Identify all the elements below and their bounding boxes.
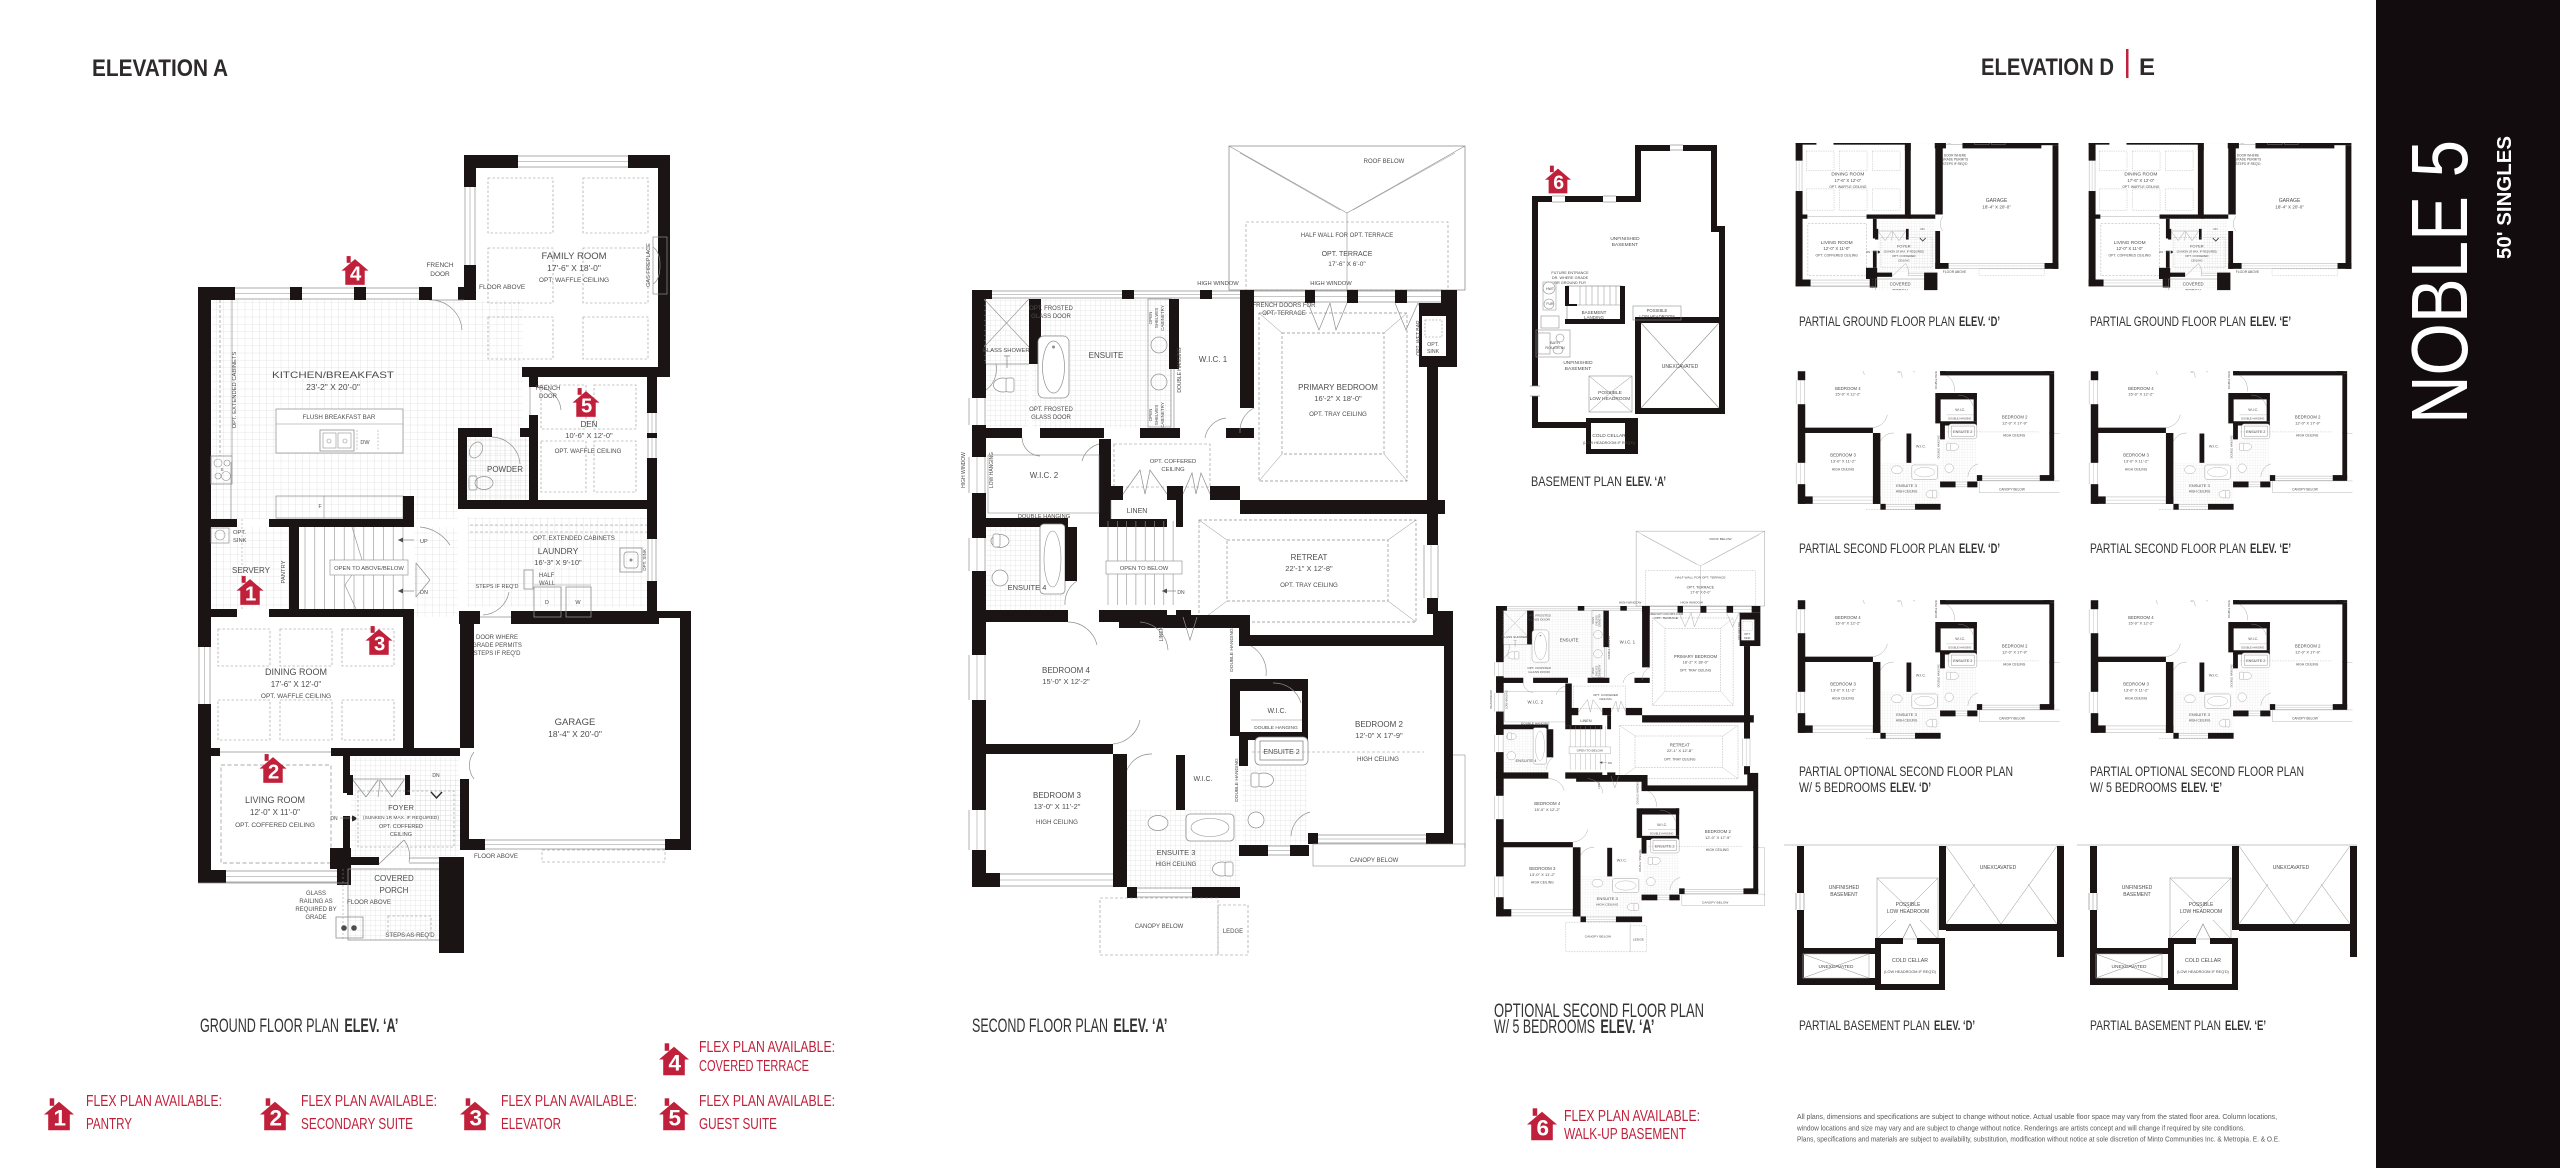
svg-text:OR GROUND FLR: OR GROUND FLR [1554,281,1586,285]
svg-text:OPT. COFFERED CEILING: OPT. COFFERED CEILING [235,822,315,829]
svg-text:OPT. EXTENDED CABINETS: OPT. EXTENDED CABINETS [232,352,238,429]
svg-text:RETREAT: RETREAT [1291,553,1328,562]
svg-text:DN: DN [432,773,440,779]
svg-text:ELEV. ‘A’: ELEV. ‘A’ [344,1016,398,1037]
svg-text:23'-2" X 20'-0": 23'-2" X 20'-0" [306,382,360,392]
svg-text:BEDROOM 2: BEDROOM 2 [1355,720,1404,729]
svg-text:12'-0" X 17'-9": 12'-0" X 17'-9" [1355,731,1403,740]
svg-text:22'-1" X 12'-8": 22'-1" X 12'-8" [1285,564,1333,573]
svg-text:18'-4" X 20'-0": 18'-4" X 20'-0" [548,729,602,739]
svg-text:W/ 5 BEDROOMS: W/ 5 BEDROOMS [2090,780,2177,795]
svg-text:OPT. COFFERED: OPT. COFFERED [1150,459,1196,465]
svg-text:HALF: HALF [539,573,555,579]
svg-text:COVERED: COVERED [374,874,414,883]
svg-text:COLD CELLAR: COLD CELLAR [1592,433,1626,439]
svg-text:UNEXCAVATED: UNEXCAVATED [1819,964,1854,970]
svg-text:ELEV. ‘A’: ELEV. ‘A’ [1626,473,1666,489]
svg-text:GRADE: GRADE [305,915,326,921]
svg-text:5: 5 [581,395,592,417]
svg-text:OPT. COFFERED: OPT. COFFERED [379,824,423,830]
svg-text:LINEN: LINEN [1127,508,1148,515]
svg-text:FLEX PLAN AVAILABLE:: FLEX PLAN AVAILABLE: [86,1093,222,1110]
svg-text:17'-6" X 18'-0": 17'-6" X 18'-0" [547,263,601,273]
svg-text:6: 6 [1536,1115,1549,1140]
svg-text:LANDING: LANDING [1584,315,1605,320]
svg-text:F: F [318,504,321,510]
svg-text:ELEV. ‘E’: ELEV. ‘E’ [2225,1018,2266,1033]
svg-text:FRENCH: FRENCH [536,386,561,392]
svg-text:ELEV. ‘E’: ELEV. ‘E’ [2181,780,2222,795]
svg-text:ELEV. ‘D’: ELEV. ‘D’ [1959,314,2000,329]
svg-text:HIGH CEILING: HIGH CEILING [1156,862,1197,868]
svg-text:PARTIAL GROUND FLOOR PLAN: PARTIAL GROUND FLOOR PLAN [1799,314,1955,329]
svg-text:FLOOR ABOVE: FLOOR ABOVE [479,284,526,291]
svg-text:POSSIBLE: POSSIBLE [1598,390,1622,396]
svg-text:PARTIAL SECOND FLOOR PLAN: PARTIAL SECOND FLOOR PLAN [2090,541,2246,556]
svg-text:NOBLE 5: NOBLE 5 [2395,140,2484,424]
svg-text:PANTRY: PANTRY [86,1116,132,1133]
svg-text:REQUIRED BY: REQUIRED BY [295,907,336,913]
svg-text:2: 2 [268,761,279,783]
svg-text:STEPS IF REQ'D: STEPS IF REQ'D [476,584,519,590]
svg-text:PARTIAL BASEMENT PLAN: PARTIAL BASEMENT PLAN [1799,1018,1930,1033]
svg-text:LOW HEADROOM: LOW HEADROOM [1887,909,1929,915]
svg-text:FLEX PLAN AVAILABLE:: FLEX PLAN AVAILABLE: [301,1093,437,1110]
svg-text:HIGH WINDOW: HIGH WINDOW [1197,281,1239,287]
svg-text:DN: DN [1177,590,1185,596]
svg-text:STEPS IF REQ'D: STEPS IF REQ'D [474,651,521,657]
svg-text:STEPS AS REQ'D: STEPS AS REQ'D [385,933,435,939]
svg-text:FLUSH BREAKFAST BAR: FLUSH BREAKFAST BAR [303,414,376,421]
svg-text:FRENCH DOORS FOR: FRENCH DOORS FOR [1253,303,1317,309]
svg-text:POSSIBLE: POSSIBLE [1896,902,1921,908]
svg-text:LOW HEADROOM: LOW HEADROOM [1590,396,1631,402]
svg-text:2: 2 [269,1105,282,1130]
svg-text:5: 5 [668,1105,681,1130]
svg-text:12'-0" X 11'-0": 12'-0" X 11'-0" [250,808,300,817]
svg-text:S: S [220,467,223,472]
svg-text:OPT.: OPT. [1427,342,1439,348]
svg-text:ROOF BELOW: ROOF BELOW [1364,159,1405,165]
svg-text:COLD CELLAR: COLD CELLAR [1892,958,1928,964]
svg-text:BASEMENT: BASEMENT [1612,242,1638,248]
svg-text:1: 1 [53,1105,66,1130]
svg-text:UNFINISHED: UNFINISHED [1829,885,1860,891]
svg-text:3: 3 [374,633,385,655]
svg-text:LAUNDRY: LAUNDRY [538,546,579,556]
svg-text:FLEX PLAN AVAILABLE:: FLEX PLAN AVAILABLE: [1564,1108,1700,1125]
svg-text:POWDER: POWDER [487,465,523,474]
svg-text:GARAGE: GARAGE [555,717,596,728]
svg-text:GLASS DOOR: GLASS DOOR [1031,314,1071,320]
svg-text:OPEN TO BELOW: OPEN TO BELOW [1120,566,1169,572]
svg-text:ELEV. ‘E’: ELEV. ‘E’ [2250,314,2291,329]
svg-text:W: W [575,600,581,606]
svg-text:FLEX PLAN AVAILABLE:: FLEX PLAN AVAILABLE: [501,1093,637,1110]
svg-text:6: 6 [1553,172,1564,194]
svg-text:PARTIAL OPTIONAL SECOND FLOOR: PARTIAL OPTIONAL SECOND FLOOR PLAN [2090,764,2304,779]
svg-text:DOUBLE HANGING: DOUBLE HANGING [1177,347,1183,392]
svg-text:UNFINISHED: UNFINISHED [1563,360,1593,366]
svg-text:OPT. TERRACE: OPT. TERRACE [1262,311,1306,317]
svg-text:GLASS SHOWER: GLASS SHOWER [982,348,1029,354]
svg-text:ELEVATION D: ELEVATION D [1981,54,2114,81]
svg-text:CANOPY BELOW: CANOPY BELOW [1135,924,1184,930]
svg-text:W/ 5 BEDROOMS: W/ 5 BEDROOMS [1799,780,1886,795]
svg-text:BATH: BATH [1550,341,1560,345]
svg-text:UNFINISHED: UNFINISHED [1610,236,1640,242]
svg-text:FUR: FUR [1546,302,1554,306]
svg-text:DOUBLE HANGING: DOUBLE HANGING [1254,725,1298,731]
svg-text:1: 1 [245,583,256,605]
svg-text:ELEV. ‘A’: ELEV. ‘A’ [1600,1017,1654,1038]
svg-text:DOUBLE HANGING: DOUBLE HANGING [1229,628,1235,672]
svg-text:LEDGE: LEDGE [1223,929,1243,935]
svg-text:BEDROOM 3: BEDROOM 3 [1033,791,1082,800]
svg-text:DEN: DEN [581,420,598,429]
svg-text:(SUNKEN 1R MAX. IF REQUIRED): (SUNKEN 1R MAX. IF REQUIRED) [363,815,439,821]
svg-text:FUTURE ENTRANCE: FUTURE ENTRANCE [1551,271,1589,275]
svg-text:ENSUITE 3: ENSUITE 3 [1157,848,1196,857]
svg-text:ELEVATOR: ELEVATOR [501,1116,561,1133]
svg-text:PARTIAL OPTIONAL SECOND FLOOR: PARTIAL OPTIONAL SECOND FLOOR PLAN [1799,764,2013,779]
svg-text:E: E [2139,54,2155,81]
svg-text:UNEXCAVATED: UNEXCAVATED [1662,364,1699,370]
svg-text:BASEMENT: BASEMENT [1565,366,1591,372]
svg-text:PARTIAL SECOND FLOOR PLAN: PARTIAL SECOND FLOOR PLAN [1799,541,1955,556]
svg-text:FAMILY ROOM: FAMILY ROOM [541,251,606,262]
svg-text:ELEV. ‘D’: ELEV. ‘D’ [1959,541,2000,556]
svg-text:HIGH WINDOW: HIGH WINDOW [1310,281,1352,287]
svg-text:LOW HANGING: LOW HANGING [989,452,995,488]
svg-text:ELEV. ‘A’: ELEV. ‘A’ [1113,1016,1167,1037]
svg-text:4: 4 [668,1050,681,1075]
svg-text:PARTIAL GROUND FLOOR PLAN: PARTIAL GROUND FLOOR PLAN [2090,314,2246,329]
svg-text:HIGH CEILING: HIGH CEILING [1357,756,1399,763]
svg-text:CABINETRY: CABINETRY [1160,305,1165,331]
svg-text:W/ 5 BEDROOMS: W/ 5 BEDROOMS [1494,1017,1595,1038]
svg-text:SHELVES: SHELVES [1154,405,1159,425]
svg-text:ELEVATION A: ELEVATION A [92,55,228,82]
svg-text:HIGH WINDOW: HIGH WINDOW [961,452,967,488]
svg-text:OPT. SINK: OPT. SINK [642,549,647,571]
svg-text:D: D [545,600,549,606]
svg-text:BASEMENT: BASEMENT [1830,892,1858,898]
svg-text:COVERED TERRACE: COVERED TERRACE [699,1058,809,1075]
svg-text:GROUND FLOOR PLAN: GROUND FLOOR PLAN [200,1016,339,1037]
svg-text:UNEXCAVATED: UNEXCAVATED [1980,865,2017,871]
svg-text:FOYER: FOYER [388,803,414,812]
svg-text:SHELVES: SHELVES [1154,308,1159,328]
svg-text:DOOR: DOOR [539,394,558,400]
svg-text:15'-0" X 12'-2": 15'-0" X 12'-2" [1042,677,1090,686]
svg-text:ENSUITE 2: ENSUITE 2 [1263,749,1299,756]
svg-text:W.I.C. 2: W.I.C. 2 [1030,471,1059,480]
svg-text:SINK: SINK [1427,349,1440,355]
svg-text:13'-0" X 11'-2": 13'-0" X 11'-2" [1034,802,1081,811]
svg-text:OPT. FROSTED: OPT. FROSTED [1029,306,1073,312]
svg-text:SERVERY: SERVERY [232,566,271,575]
svg-text:CANOPY BELOW: CANOPY BELOW [1350,858,1399,864]
svg-text:CEILING: CEILING [390,832,412,838]
svg-text:DOOR WHERE: DOOR WHERE [476,635,518,641]
svg-text:OPT. TERRACE: OPT. TERRACE [1322,251,1373,258]
svg-text:DOOR: DOOR [430,271,450,278]
svg-text:GLASS DOOR: GLASS DOOR [1031,415,1071,421]
svg-text:FLEX PLAN AVAILABLE:: FLEX PLAN AVAILABLE: [699,1093,835,1110]
svg-text:HWT: HWT [1546,287,1555,291]
svg-text:W.I.C.: W.I.C. [1267,708,1286,715]
svg-text:ELEV. ‘E’: ELEV. ‘E’ [2250,541,2291,556]
svg-text:OPEN TO ABOVE/BELOW: OPEN TO ABOVE/BELOW [334,566,404,572]
svg-text:(LOW HEADROOM IF REQ'D): (LOW HEADROOM IF REQ'D) [1583,441,1636,445]
svg-text:17'-6" X 12'-0": 17'-6" X 12'-0" [271,680,322,689]
svg-text:WALL: WALL [539,581,556,587]
svg-text:ELEV. ‘D’: ELEV. ‘D’ [1934,1018,1975,1033]
svg-text:DINING ROOM: DINING ROOM [265,667,327,677]
svg-text:ENSUITE 4: ENSUITE 4 [1008,583,1047,592]
svg-text:DR. WHERE GRADE: DR. WHERE GRADE [1552,276,1589,280]
svg-text:SINK: SINK [233,538,247,544]
svg-text:PRIMARY BEDROOM: PRIMARY BEDROOM [1298,383,1378,392]
svg-text:GUEST SUITE: GUEST SUITE [699,1116,777,1133]
svg-text:BASEMENT PLAN: BASEMENT PLAN [1531,473,1622,489]
svg-text:OPT. WET BAR: OPT. WET BAR [1416,320,1422,356]
svg-text:ROUGH-IN: ROUGH-IN [1545,346,1564,350]
svg-text:BEDROOM 4: BEDROOM 4 [1042,666,1091,675]
svg-text:PARTIAL BASEMENT PLAN: PARTIAL BASEMENT PLAN [2090,1018,2221,1033]
svg-text:(LOW HEADROOM IF REQ'D): (LOW HEADROOM IF REQ'D) [1884,970,1937,974]
svg-text:OPT. WAFFLE CEILING: OPT. WAFFLE CEILING [539,277,609,284]
svg-text:FRENCH: FRENCH [426,262,453,269]
svg-text:PANTRY: PANTRY [281,560,287,583]
svg-text:16'-3" X 9'-10": 16'-3" X 9'-10" [534,558,582,567]
svg-text:17'-6" X 6'-0": 17'-6" X 6'-0" [1328,261,1366,268]
svg-text:FLOOR ABOVE: FLOOR ABOVE [347,899,391,906]
svg-text:DW: DW [360,440,370,446]
svg-text:LOW HEADROOM: LOW HEADROOM [1639,314,1675,319]
svg-text:W.I.C. 1: W.I.C. 1 [1199,355,1228,364]
svg-text:OPT. TRAY CEILING: OPT. TRAY CEILING [1309,411,1367,418]
svg-text:OPT. EXTENDED CABINETS: OPT. EXTENDED CABINETS [533,535,615,542]
svg-text:All plans, dimensions and spec: All plans, dimensions and specifications… [1797,1112,2277,1121]
svg-text:CABINETRY: CABINETRY [1160,402,1165,428]
svg-text:GLASS: GLASS [306,891,326,897]
svg-text:GRADE PERMITS: GRADE PERMITS [472,643,522,649]
svg-text:HIGH CEILING: HIGH CEILING [1036,819,1078,826]
svg-text:OPEN: OPEN [1148,312,1153,325]
svg-text:SECONDARY SUITE: SECONDARY SUITE [301,1116,413,1133]
svg-text:FLOOR ABOVE: FLOOR ABOVE [474,853,518,860]
svg-text:LIVING ROOM: LIVING ROOM [245,795,305,805]
svg-text:16'-2" X 18'-0": 16'-2" X 18'-0" [1314,394,1362,403]
svg-text:OPT. TRAY CEILING: OPT. TRAY CEILING [1280,582,1338,589]
svg-text:POSSIBLE: POSSIBLE [1647,308,1668,313]
svg-text:OPT. FROSTED: OPT. FROSTED [1029,407,1073,413]
svg-text:50' SINGLES: 50' SINGLES [2494,136,2516,259]
svg-text:OPT. WAFFLE CEILING: OPT. WAFFLE CEILING [555,448,622,455]
svg-text:CEILING: CEILING [1161,467,1185,473]
svg-text:UP: UP [420,539,428,545]
svg-text:ELEV. ‘D’: ELEV. ‘D’ [1890,780,1931,795]
svg-text:SECOND FLOOR PLAN: SECOND FLOOR PLAN [972,1016,1108,1037]
svg-text:OPT.: OPT. [233,530,246,536]
svg-text:W.I.C.: W.I.C. [1193,776,1212,783]
svg-text:GAS FIREPLACE: GAS FIREPLACE [646,243,652,287]
svg-text:10'-6" X 12'-0": 10'-6" X 12'-0" [565,431,613,440]
svg-text:PORCH: PORCH [380,886,409,895]
svg-text:Plans, specifications and mate: Plans, specifications and materials are … [1797,1135,2280,1144]
svg-text:KITCHEN/BREAKFAST: KITCHEN/BREAKFAST [272,370,394,381]
svg-text:OPT. WAFFLE CEILING: OPT. WAFFLE CEILING [261,693,331,700]
svg-text:DN: DN [330,816,338,822]
svg-text:3: 3 [469,1105,482,1130]
svg-text:4: 4 [350,263,362,285]
svg-text:FLEX PLAN AVAILABLE:: FLEX PLAN AVAILABLE: [699,1039,835,1056]
svg-text:WALK-UP BASEMENT: WALK-UP BASEMENT [1564,1126,1686,1143]
svg-text:window locations and size may: window locations and size may vary and a… [1796,1123,2245,1132]
svg-text:OPEN: OPEN [1148,409,1153,422]
svg-text:HALF WALL FOR OPT. TERRACE: HALF WALL FOR OPT. TERRACE [1301,233,1393,239]
svg-text:ENSUITE: ENSUITE [1089,351,1124,360]
svg-text:RAILING AS: RAILING AS [299,899,332,905]
